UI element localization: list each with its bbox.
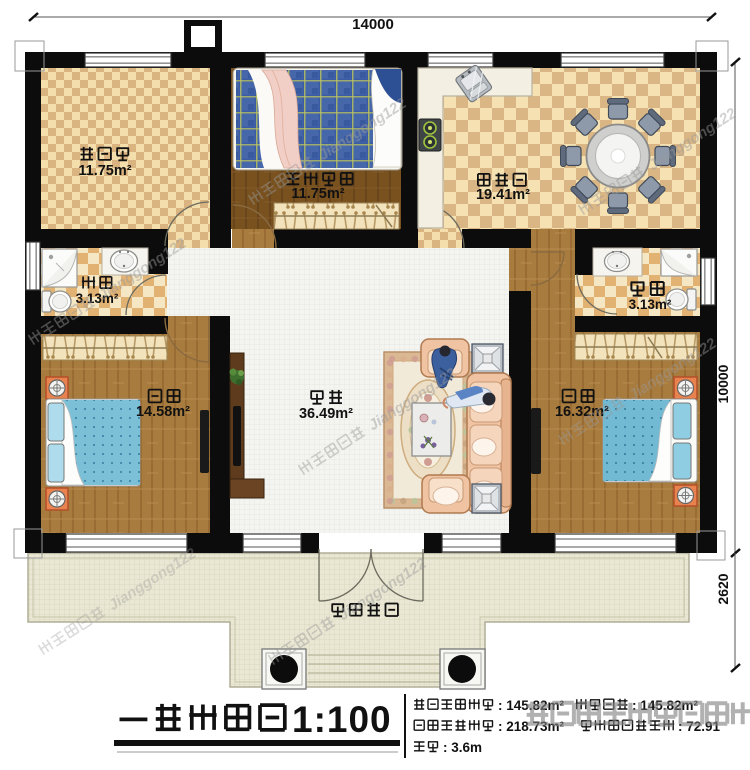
svg-text:10000: 10000 bbox=[715, 364, 731, 403]
svg-text:: 72.91: : 72.91 bbox=[678, 719, 721, 734]
svg-text:: 3.6m: : 3.6m bbox=[443, 740, 482, 755]
svg-text:19.41m²: 19.41m² bbox=[476, 187, 530, 203]
svg-text:2620: 2620 bbox=[715, 573, 731, 604]
svg-text:14.58m²: 14.58m² bbox=[136, 404, 190, 420]
svg-text:36.49m²: 36.49m² bbox=[299, 406, 353, 422]
svg-text:14000: 14000 bbox=[352, 16, 394, 33]
svg-text:1:100: 1:100 bbox=[292, 699, 392, 740]
svg-text:11.75m²: 11.75m² bbox=[291, 186, 344, 202]
svg-text:11.75m²: 11.75m² bbox=[78, 163, 131, 179]
svg-text:3.13m²: 3.13m² bbox=[629, 297, 672, 312]
